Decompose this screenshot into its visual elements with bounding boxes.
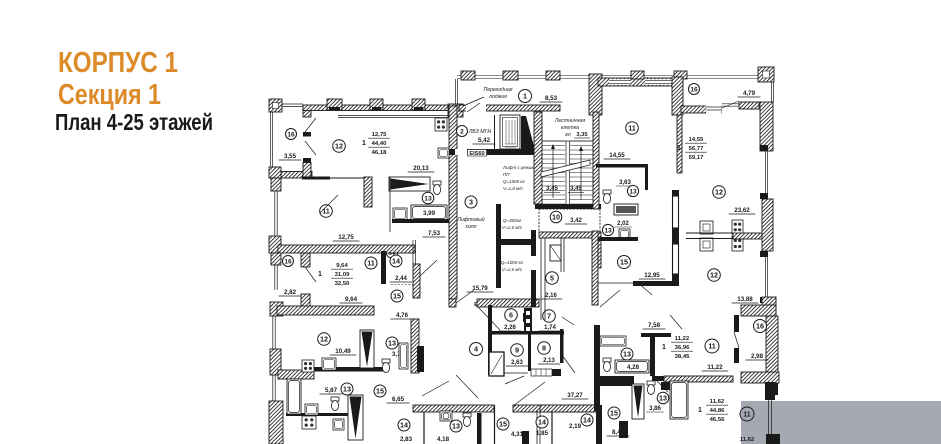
svg-text:15: 15 [376, 387, 384, 396]
svg-text:23,62: 23,62 [734, 207, 750, 214]
svg-text:44,40: 44,40 [372, 141, 387, 147]
svg-text:6,65: 6,65 [392, 396, 405, 403]
svg-text:15,79: 15,79 [472, 285, 488, 292]
svg-text:7,58: 7,58 [648, 322, 661, 329]
svg-text:20,13: 20,13 [413, 165, 429, 172]
svg-text:11,22: 11,22 [707, 364, 723, 371]
svg-text:10: 10 [552, 213, 560, 222]
svg-text:11: 11 [743, 412, 751, 419]
svg-text:2,16: 2,16 [545, 293, 557, 299]
svg-text:2,44: 2,44 [395, 276, 407, 282]
svg-text:Лестничная: Лестничная [554, 118, 585, 124]
svg-text:Q=1000 кг: Q=1000 кг [501, 260, 524, 265]
svg-text:4,28: 4,28 [627, 364, 640, 371]
svg-text:4,79: 4,79 [743, 90, 756, 97]
svg-text:14,55: 14,55 [689, 137, 704, 143]
svg-text:12: 12 [335, 142, 343, 151]
svg-text:Q=1000 кг: Q=1000 кг [503, 179, 526, 184]
svg-text:1: 1 [318, 271, 322, 278]
svg-text:14: 14 [583, 416, 591, 425]
svg-text:3,35: 3,35 [576, 132, 588, 138]
svg-text:V=1,6 м/с: V=1,6 м/с [503, 186, 523, 191]
svg-text:Лифтовый: Лифтовый [456, 216, 484, 223]
svg-text:59,17: 59,17 [689, 155, 704, 161]
svg-text:14: 14 [400, 421, 408, 430]
svg-text:10,49: 10,49 [335, 348, 351, 355]
svg-text:клетка: клетка [561, 125, 579, 131]
svg-text:2: 2 [460, 128, 464, 135]
svg-text:36,96: 36,96 [675, 345, 690, 351]
svg-text:13: 13 [604, 227, 612, 234]
svg-text:13: 13 [659, 394, 667, 403]
svg-text:4: 4 [474, 345, 478, 354]
svg-text:9,64: 9,64 [336, 263, 348, 269]
svg-text:8: 8 [542, 344, 546, 353]
svg-text:12,95: 12,95 [644, 272, 660, 279]
svg-text:1: 1 [662, 344, 666, 351]
svg-text:5,87: 5,87 [325, 387, 338, 394]
svg-text:11: 11 [322, 207, 330, 216]
svg-text:46,18: 46,18 [372, 150, 387, 156]
svg-text:15: 15 [620, 258, 628, 267]
svg-text:13: 13 [623, 350, 631, 359]
svg-text:1,85: 1,85 [536, 430, 549, 437]
svg-text:1: 1 [523, 92, 527, 101]
svg-text:2,98: 2,98 [751, 353, 764, 360]
svg-text:2,19: 2,19 [569, 423, 582, 430]
svg-text:12: 12 [715, 188, 723, 197]
svg-text:11,62: 11,62 [740, 437, 754, 443]
svg-text:3: 3 [469, 198, 473, 207]
svg-text:38,45: 38,45 [675, 354, 690, 360]
svg-text:14,55: 14,55 [609, 152, 625, 159]
svg-text:V=1,6 м/с: V=1,6 м/с [502, 267, 523, 272]
svg-text:37,27: 37,27 [567, 392, 583, 399]
svg-text:лоджия: лоджия [488, 94, 507, 100]
svg-text:Q=400кг: Q=400кг [503, 218, 522, 223]
svg-text:2,13: 2,13 [543, 358, 555, 364]
svg-text:11,62: 11,62 [710, 399, 725, 405]
svg-text:11: 11 [367, 259, 375, 268]
svg-text:V=1,6 м/с: V=1,6 м/с [502, 225, 523, 230]
svg-text:5: 5 [550, 274, 554, 283]
svg-text:12,75: 12,75 [372, 132, 387, 138]
svg-text:1: 1 [677, 145, 681, 152]
svg-text:13: 13 [629, 188, 637, 195]
svg-text:11,22: 11,22 [675, 336, 690, 342]
svg-text:14: 14 [392, 257, 400, 266]
svg-text:12: 12 [710, 271, 718, 280]
svg-text:15: 15 [499, 420, 507, 429]
svg-text:ПП: ПП [503, 172, 510, 177]
svg-text:ЛБЗ МГН: ЛБЗ МГН [468, 129, 492, 135]
svg-text:46,56: 46,56 [710, 417, 725, 423]
svg-text:3,45: 3,45 [570, 186, 582, 192]
svg-text:3,86: 3,86 [649, 406, 661, 412]
svg-text:4,76: 4,76 [396, 312, 409, 319]
svg-text:5,42: 5,42 [478, 137, 491, 144]
svg-text:11: 11 [708, 342, 716, 351]
svg-text:3,55: 3,55 [284, 153, 297, 160]
svg-text:13: 13 [452, 422, 460, 431]
svg-text:3,45: 3,45 [546, 186, 558, 192]
svg-text:12: 12 [320, 335, 328, 344]
svg-text:Секция 1: Секция 1 [58, 79, 161, 111]
svg-text:8,53: 8,53 [545, 95, 558, 102]
svg-text:56,77: 56,77 [689, 146, 704, 152]
svg-text:2,83: 2,83 [400, 436, 413, 443]
svg-text:2,82: 2,82 [284, 289, 297, 296]
svg-text:16: 16 [287, 131, 295, 138]
svg-text:3,99: 3,99 [423, 210, 436, 217]
svg-text:12,75: 12,75 [338, 234, 354, 241]
svg-text:14: 14 [538, 418, 546, 427]
svg-text:4,18: 4,18 [437, 436, 450, 443]
svg-text:16: 16 [284, 258, 292, 265]
svg-text:9: 9 [515, 346, 519, 355]
svg-text:холл: холл [464, 224, 476, 230]
svg-text:16: 16 [690, 86, 698, 93]
svg-text:31,09: 31,09 [335, 272, 350, 278]
svg-text:7,53: 7,53 [428, 230, 441, 237]
svg-text:13: 13 [343, 385, 351, 394]
svg-text:15: 15 [610, 409, 618, 418]
svg-text:Переходная: Переходная [484, 87, 513, 93]
svg-text:КОРПУС 1: КОРПУС 1 [58, 47, 178, 79]
svg-text:15: 15 [393, 292, 401, 301]
svg-text:13,88: 13,88 [737, 296, 753, 303]
svg-text:3,42: 3,42 [570, 218, 582, 224]
svg-text:6: 6 [509, 311, 513, 320]
svg-text:44,86: 44,86 [710, 408, 725, 414]
svg-text:1,74: 1,74 [544, 325, 556, 331]
svg-text:4,31: 4,31 [511, 431, 524, 438]
svg-text:13: 13 [424, 195, 432, 202]
svg-text:EIS60: EIS60 [469, 151, 484, 157]
svg-text:9,64: 9,64 [345, 296, 358, 303]
svg-text:32,50: 32,50 [335, 281, 350, 287]
svg-text:16: 16 [756, 322, 764, 331]
svg-text:3,63: 3,63 [619, 180, 631, 186]
svg-text:13: 13 [388, 339, 396, 348]
svg-text:7: 7 [547, 312, 551, 321]
svg-text:2,02: 2,02 [617, 221, 629, 227]
svg-text:кл: кл [565, 132, 570, 138]
svg-text:2,26: 2,26 [504, 325, 516, 331]
svg-text:План 4-25 этажей: План 4-25 этажей [55, 109, 213, 135]
svg-text:1: 1 [362, 140, 366, 147]
svg-text:11: 11 [628, 124, 636, 133]
svg-text:1: 1 [698, 407, 702, 414]
svg-text:2,63: 2,63 [511, 360, 523, 366]
